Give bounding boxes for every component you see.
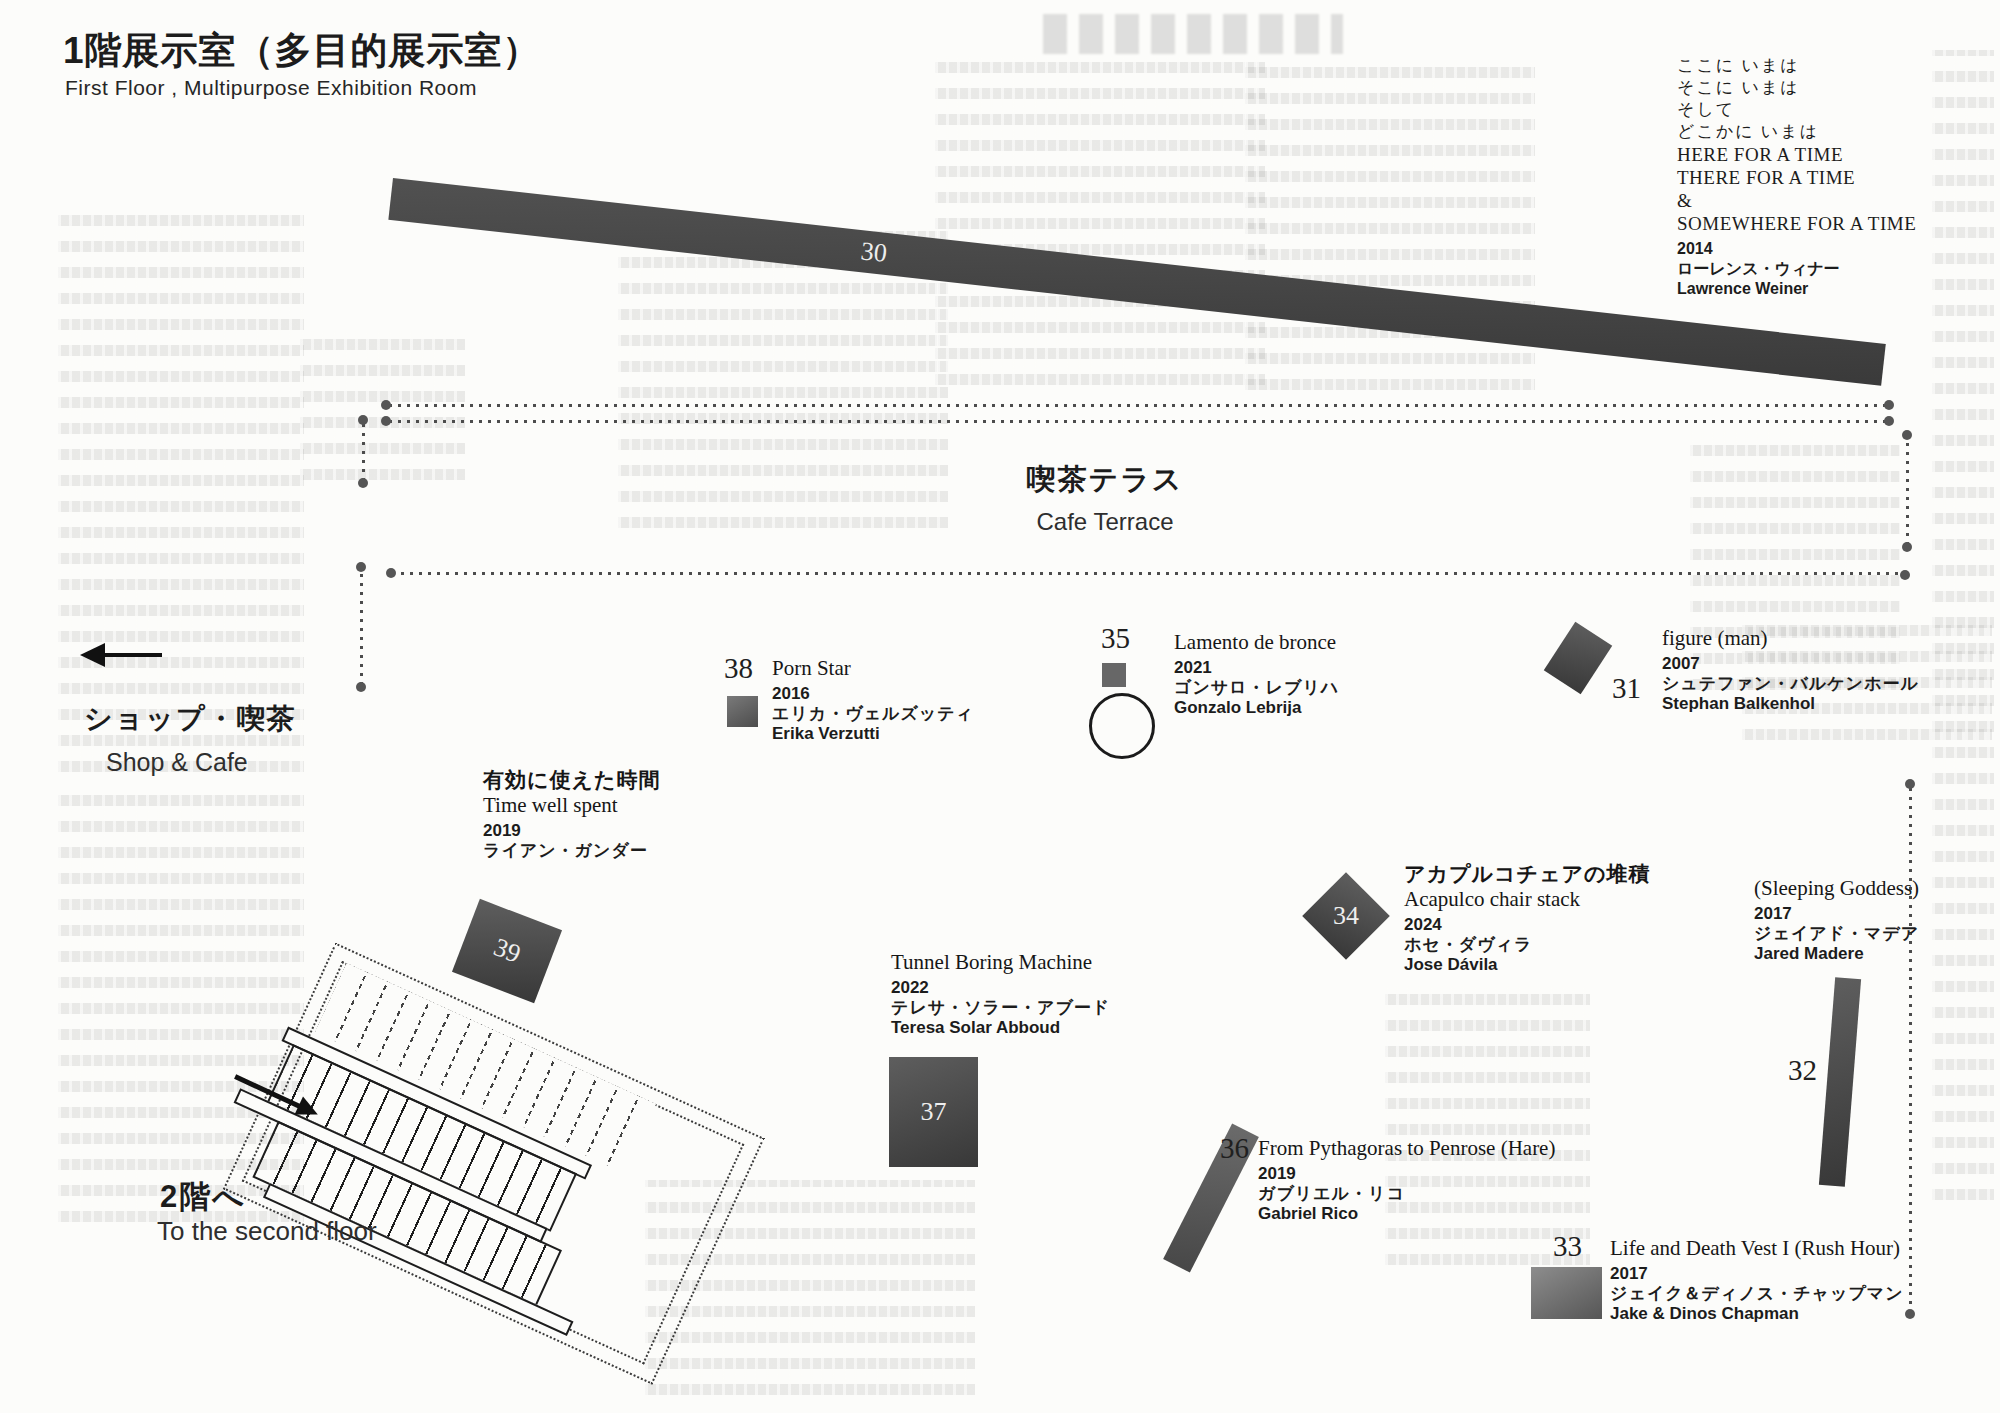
artwork-artist-en: Teresa Solar Abboud	[891, 1018, 1110, 1038]
artwork-36-number: 36	[1220, 1132, 1249, 1165]
artwork-32-number: 32	[1788, 1054, 1817, 1087]
artwork-31-number: 31	[1612, 672, 1641, 705]
artwork-33-caption: Life and Death Vest I (Rush Hour) 2017 ジ…	[1610, 1236, 1904, 1324]
artwork-34-footprint: 34	[1302, 872, 1390, 960]
floor-plan-page: 1階展示室（多目的展示室） First Floor , Multipurpose…	[0, 0, 2000, 1413]
stairs-label-en: To the second floor	[157, 1216, 377, 1247]
fence-post-dot	[386, 568, 396, 578]
caption-line: どこかに いまは	[1677, 121, 1916, 143]
artwork-title: Porn Star	[772, 656, 974, 681]
cafe-terrace-fence-line	[389, 420, 1886, 423]
stairs-label-ja: 2階へ	[160, 1176, 246, 1218]
fence-post-dot	[1884, 400, 1894, 410]
artwork-artist-en: Jake & Dinos Chapman	[1610, 1304, 1904, 1324]
artwork-year: 2007	[1662, 654, 1919, 674]
artwork-38-footprint	[727, 696, 758, 727]
caption-line: SOMEWHERE FOR A TIME	[1677, 212, 1916, 235]
fence-post-dot	[358, 415, 368, 425]
cafe-terrace-label-ja: 喫茶テラス	[1000, 460, 1210, 500]
artwork-31-footprint	[1544, 622, 1612, 695]
left-arrow-icon	[80, 642, 180, 668]
fence-post-dot	[356, 562, 366, 572]
artwork-artist-ja: シュテファン・バルケンホール	[1662, 674, 1919, 694]
artwork-37-footprint: 37	[889, 1057, 978, 1167]
boundary-dotted-line	[1909, 787, 1912, 1313]
artwork-35-number: 35	[1101, 622, 1130, 655]
fence-post-dot	[1900, 570, 1910, 580]
artwork-artist-en: Jared Madere	[1754, 944, 1919, 964]
caption-line: &	[1677, 189, 1916, 212]
caption-line: ここに いまは	[1677, 55, 1916, 77]
caption-line: そして	[1677, 99, 1916, 121]
artwork-title: From Pythagoras to Penrose (Hare)	[1258, 1136, 1555, 1161]
artwork-year: 2017	[1610, 1264, 1904, 1284]
artwork-artist-ja: テレサ・ソラー・アブード	[891, 998, 1110, 1018]
artwork-35-footprint	[1102, 663, 1126, 687]
artwork-title: Tunnel Boring Machine	[891, 950, 1110, 975]
artwork-31-caption: figure (man) 2007 シュテファン・バルケンホール Stephan…	[1662, 626, 1919, 714]
cafe-terrace-label-en: Cafe Terrace	[1000, 508, 1210, 536]
shop-cafe-label-en: Shop & Cafe	[106, 748, 248, 777]
bleed-through-text	[935, 55, 1265, 385]
artwork-39-caption: 有効に使えた時間 Time well spent 2019 ライアン・ガンダー	[483, 768, 660, 861]
fence-post-dot	[358, 478, 368, 488]
cafe-terrace-fence-line	[360, 569, 363, 685]
artwork-39-number: 39	[489, 932, 524, 969]
artwork-34-caption: アカプルコチェアの堆積 Acapulco chair stack 2024 ホセ…	[1404, 862, 1650, 975]
cafe-terrace-fence-line	[362, 421, 365, 481]
artwork-artist-ja: ガブリエル・リコ	[1258, 1184, 1555, 1204]
artwork-artist-ja: エリカ・ヴェルズッティ	[772, 704, 974, 724]
artwork-title-ja: 有効に使えた時間	[483, 768, 660, 793]
artwork-artist-ja: ゴンサロ・レブリハ	[1174, 678, 1339, 698]
fence-post-dot	[1902, 542, 1912, 552]
artwork-34-number: 34	[1333, 901, 1359, 931]
artwork-30-number: 30	[859, 236, 888, 269]
artwork-title: Life and Death Vest I (Rush Hour)	[1610, 1236, 1904, 1261]
fence-post-dot	[381, 416, 391, 426]
caption-line: THERE FOR A TIME	[1677, 166, 1916, 189]
artwork-year: 2014	[1677, 239, 1916, 259]
artwork-title: figure (man)	[1662, 626, 1919, 651]
artwork-title: Lamento de bronce	[1174, 630, 1339, 655]
artwork-artist-ja: ジェイアド・マデア	[1754, 924, 1919, 944]
artwork-year: 2019	[483, 821, 660, 841]
artwork-39-footprint: 39	[452, 899, 562, 1003]
artwork-35-caption: Lamento de bronce 2021 ゴンサロ・レブリハ Gonzalo…	[1174, 630, 1339, 718]
page-title: 1階展示室（多目的展示室）	[63, 26, 541, 76]
artwork-33-number: 33	[1553, 1230, 1582, 1263]
bleed-through-text	[58, 212, 304, 772]
artwork-30-caption: ここに いまは そこに いまは そして どこかに いまは HERE FOR A …	[1677, 55, 1916, 299]
cafe-terrace-label: 喫茶テラス Cafe Terrace	[1000, 460, 1210, 536]
fence-post-dot	[1905, 1309, 1915, 1319]
artwork-year: 2024	[1404, 915, 1650, 935]
artwork-artist-en: Gonzalo Lebrija	[1174, 698, 1339, 718]
fence-post-dot	[356, 682, 366, 692]
artwork-year: 2017	[1754, 904, 1919, 924]
artwork-title-ja: アカプルコチェアの堆積	[1404, 862, 1650, 887]
artwork-year: 2019	[1258, 1164, 1555, 1184]
artwork-title: (Sleeping Goddess)	[1754, 876, 1919, 901]
artwork-32-caption: (Sleeping Goddess) 2017 ジェイアド・マデア Jared …	[1754, 876, 1919, 964]
artwork-36-caption: From Pythagoras to Penrose (Hare) 2019 ガ…	[1258, 1136, 1555, 1224]
arrow-shaft	[98, 653, 162, 657]
shop-cafe-label-ja: ショップ・喫茶	[84, 700, 297, 738]
cafe-terrace-fence-line	[392, 572, 1904, 575]
artwork-artist-ja: ジェイク＆ディノス・チャップマン	[1610, 1284, 1904, 1304]
artwork-artist-en: Gabriel Rico	[1258, 1204, 1555, 1224]
page-subtitle: First Floor , Multipurpose Exhibition Ro…	[65, 76, 477, 100]
artwork-32-footprint	[1819, 977, 1861, 1186]
artwork-year: 2022	[891, 978, 1110, 998]
artwork-38-caption: Porn Star 2016 エリカ・ヴェルズッティ Erika Verzutt…	[772, 656, 974, 744]
artwork-title: Acapulco chair stack	[1404, 887, 1650, 912]
artwork-artist-en: Erika Verzutti	[772, 724, 974, 744]
bleed-through-headline	[1043, 14, 1343, 54]
artwork-artist-ja: ローレンス・ウィナー	[1677, 259, 1916, 279]
artwork-38-number: 38	[724, 652, 753, 685]
caption-line: HERE FOR A TIME	[1677, 143, 1916, 166]
artwork-artist-en: Lawrence Weiner	[1677, 279, 1916, 299]
artwork-30-footprint: 30	[388, 178, 1885, 386]
artwork-artist-en: Jose Dávila	[1404, 955, 1650, 975]
fence-post-dot	[1905, 779, 1915, 789]
artwork-year: 2016	[772, 684, 974, 704]
artwork-artist-en: Stephan Balkenhol	[1662, 694, 1919, 714]
fence-post-dot	[1902, 430, 1912, 440]
fence-post-dot	[381, 400, 391, 410]
cafe-terrace-fence-line	[389, 404, 1886, 407]
artwork-year: 2021	[1174, 658, 1339, 678]
artwork-title: Time well spent	[483, 793, 660, 818]
artwork-37-caption: Tunnel Boring Machine 2022 テレサ・ソラー・アブード …	[891, 950, 1110, 1038]
artwork-37-number: 37	[921, 1097, 947, 1127]
artwork-35-footprint-circle	[1089, 693, 1155, 759]
cafe-terrace-fence-line	[1906, 437, 1909, 545]
caption-line: そこに いまは	[1677, 77, 1916, 99]
bleed-through-text	[1932, 50, 1994, 1200]
artwork-artist-ja: ライアン・ガンダー	[483, 841, 660, 861]
fence-post-dot	[1884, 416, 1894, 426]
artwork-33-footprint	[1531, 1267, 1602, 1319]
artwork-artist-ja: ホセ・ダヴィラ	[1404, 935, 1650, 955]
